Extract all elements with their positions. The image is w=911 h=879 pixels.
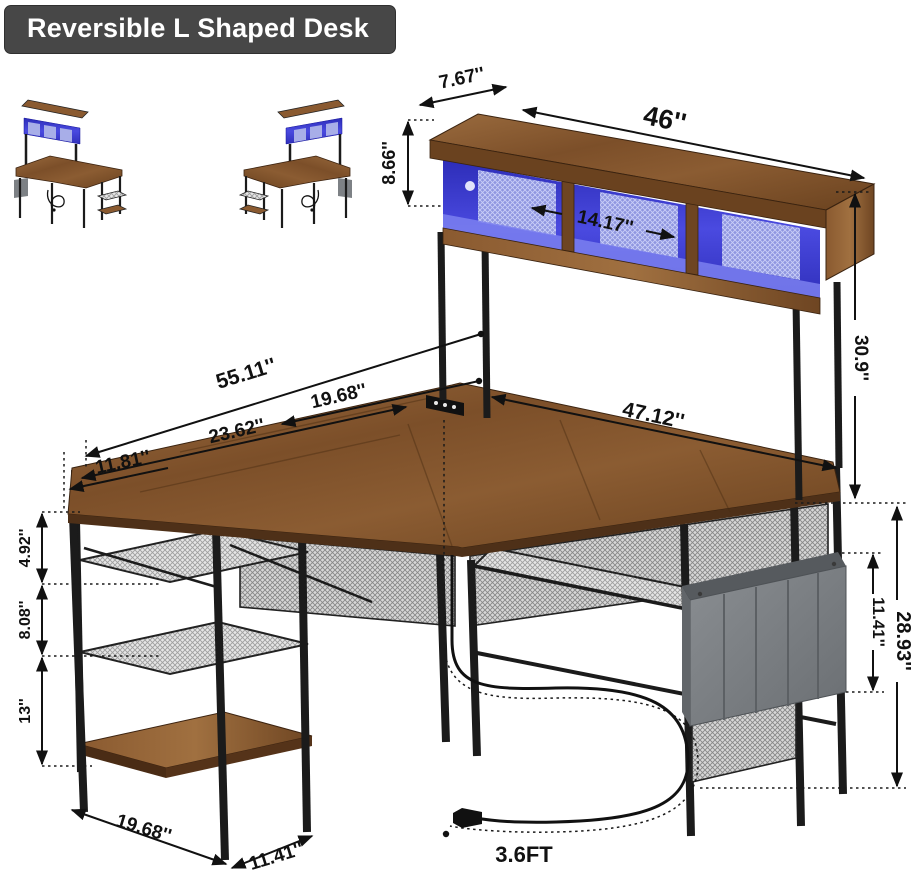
led-light-icon (465, 181, 475, 191)
dim-shelf-gap-top: 4.92'' (17, 529, 34, 568)
dim-shelf-gap-bottom: 13'' (17, 698, 34, 723)
dim-hutch-rise: 30.9'' (850, 335, 871, 381)
product-dimension-image: Reversible L Shaped Desk (0, 0, 911, 879)
dim-hutch-length: 46'' (641, 100, 689, 138)
dim-pocket-height: 11.41'' (869, 597, 888, 647)
dim-cord-length: 3.6FT (495, 842, 553, 867)
dim-desk-height: 28.93'' (892, 611, 911, 671)
cubby-divider (686, 203, 698, 275)
thumbnail-right-orientation (240, 100, 352, 228)
dim-hutch-height: 8.66'' (379, 141, 399, 185)
mesh-shelf-lower (80, 622, 308, 674)
desk-diagram: 7.67'' 46'' 8.66'' 14.17'' 30.9'' 55.11'… (0, 0, 911, 879)
dim-shelf-gap-mid: 8.08'' (17, 601, 34, 640)
dim-total-length: 55.11'' (213, 354, 278, 394)
plug-icon (453, 808, 482, 828)
dim-base-length: 19.68'' (113, 810, 173, 847)
cubby-divider (562, 180, 574, 252)
dim-hutch-depth: 7.67'' (437, 64, 486, 94)
dim-base-depth: 11.41'' (247, 839, 306, 875)
thumbnail-left-orientation (14, 100, 126, 228)
